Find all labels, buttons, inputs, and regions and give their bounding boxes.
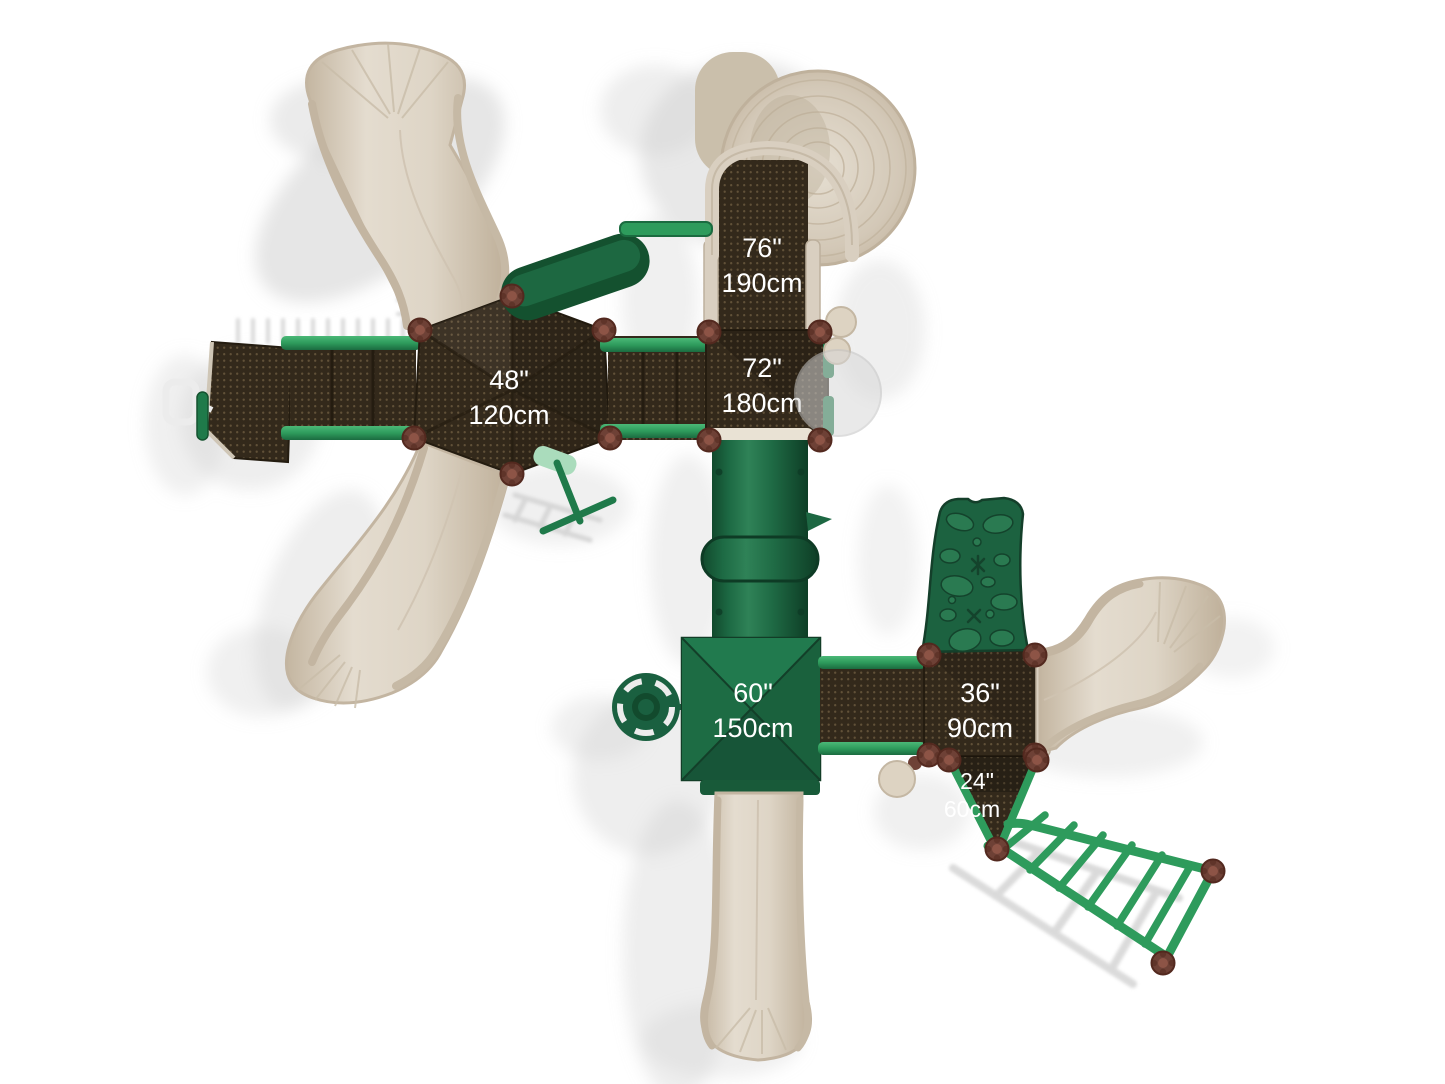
crawl-tube (702, 428, 832, 652)
bubble-panel (795, 350, 881, 436)
crawl-tube-collar (702, 537, 818, 581)
playground-plan-svg: 48" 120cm 76" 190 (0, 0, 1445, 1084)
label-deck24-cm: 60cm (944, 796, 1000, 822)
label-deck72-cm: 180cm (721, 388, 802, 418)
rock-climber-arch (922, 498, 1028, 654)
panel-green-edge (197, 392, 208, 440)
entry-platform (206, 342, 292, 462)
playground-top-view: 48" 120cm 76" 190 (0, 0, 1445, 1084)
transfer-stairs (281, 336, 421, 440)
stairs-top-handrail (281, 336, 421, 350)
bridge-deck60-to-deck36 (818, 656, 926, 755)
roof-deck-60: 60" 150cm (682, 638, 820, 795)
label-deck48-inches: 48" (489, 365, 529, 395)
hex-deck-48: 48" 120cm (414, 296, 610, 474)
inclined-ladder (988, 815, 1213, 957)
label-deck24-inches: 24" (960, 768, 994, 794)
label-deck60-inches: 60" (733, 678, 773, 708)
label-walkway-inches: 76" (742, 233, 782, 263)
transfer-shelf (620, 222, 712, 236)
stairs-bottom-handrail (281, 426, 421, 440)
label-deck60-cm: 150cm (712, 713, 793, 743)
bridge2-bottom-handrail (818, 742, 926, 755)
bridge1-top-handrail (600, 338, 712, 352)
label-deck36-cm: 90cm (947, 713, 1013, 743)
bridge-hex-to-deck72 (600, 336, 712, 440)
bridge2-top-handrail (818, 656, 926, 669)
label-deck72-inches: 72" (742, 353, 782, 383)
crawl-tube-fin (806, 512, 832, 531)
label-walkway-cm: 190cm (721, 268, 802, 298)
straight-slide (702, 793, 811, 1060)
label-deck36-inches: 36" (960, 678, 1000, 708)
label-deck48-cm: 120cm (468, 400, 549, 430)
